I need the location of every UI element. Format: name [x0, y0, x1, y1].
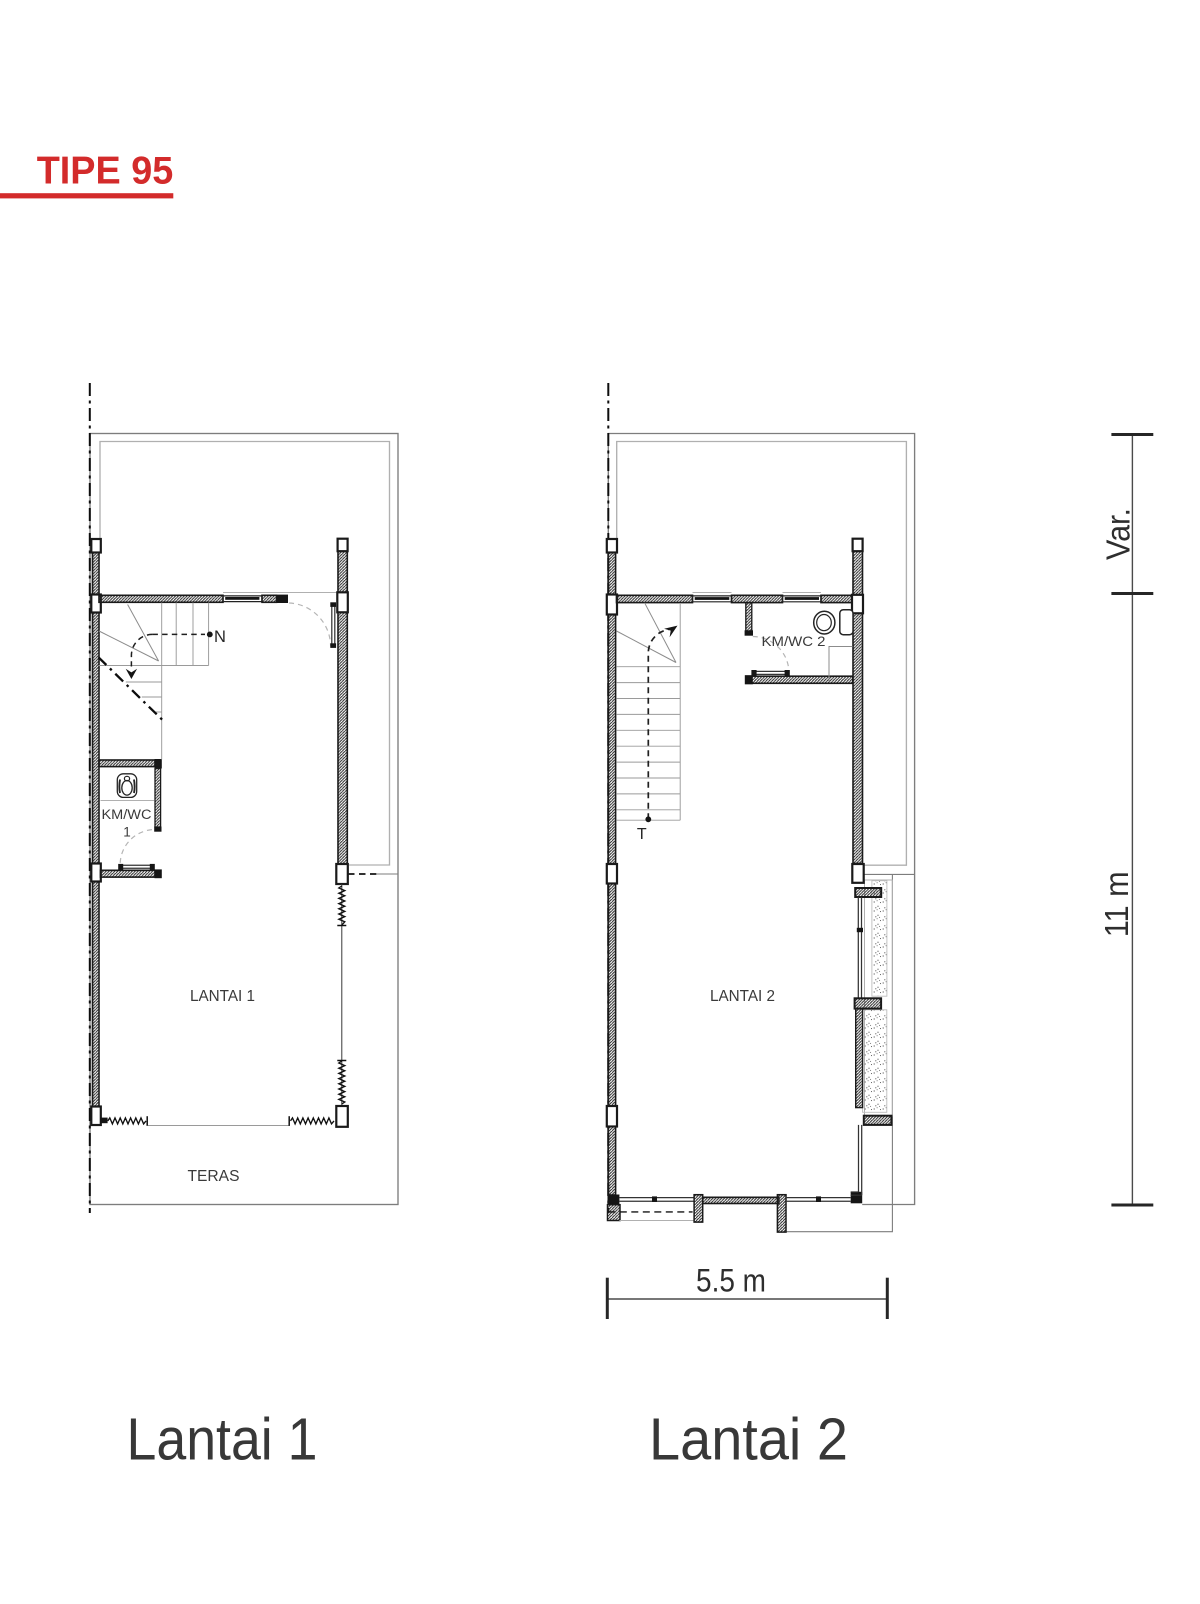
svg-text:Var.: Var. [1101, 508, 1138, 560]
svg-text:11 m: 11 m [1099, 871, 1136, 937]
svg-text:1: 1 [123, 825, 131, 840]
svg-text:KM/WC 2: KM/WC 2 [762, 633, 826, 649]
svg-text:LANTAI 1: LANTAI 1 [190, 988, 255, 1005]
svg-text:5.5 m: 5.5 m [696, 1263, 766, 1299]
svg-text:TIPE 95: TIPE 95 [37, 149, 174, 192]
svg-text:Lantai 1: Lantai 1 [127, 1406, 318, 1472]
svg-text:N: N [214, 628, 226, 646]
svg-text:T: T [637, 826, 647, 843]
svg-text:KM/WC: KM/WC [102, 807, 152, 822]
svg-text:LANTAI 2: LANTAI 2 [710, 988, 775, 1005]
svg-text:Lantai 2: Lantai 2 [649, 1406, 848, 1472]
svg-text:TERAS: TERAS [188, 1168, 240, 1185]
